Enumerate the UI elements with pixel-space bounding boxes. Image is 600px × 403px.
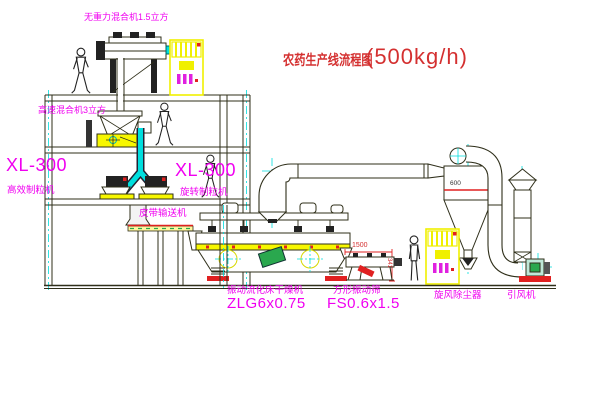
worker-figure-roof <box>72 48 90 93</box>
label-sieve-model: FS0.6x1.5 <box>327 296 400 311</box>
dim-sieve-height: 341 <box>386 258 392 268</box>
label-fan: 引风机 <box>507 291 536 301</box>
page-title-capacity: (500kg/h) <box>366 46 468 68</box>
label-dryer-model: ZLG6x0.75 <box>227 296 306 311</box>
control-cabinet-ground <box>426 229 459 284</box>
granulator-left <box>100 176 134 199</box>
label-xl300-right: XL-300 <box>175 161 236 179</box>
exhaust-stack <box>509 169 536 262</box>
dim-cyclone-diameter: 600 <box>450 181 461 188</box>
worker-figure-floor2 <box>156 103 173 145</box>
dim-sieve-length: 1500 <box>352 242 368 249</box>
label-cyclone: 旋风除尘器 <box>434 291 482 301</box>
label-cone-mixer: 高速混合机3立方 <box>38 106 106 115</box>
worker-figure-ground <box>409 236 419 281</box>
label-granulator-left: 高效制粒机 <box>7 186 55 196</box>
gravity-free-mixer <box>96 32 178 93</box>
vibrating-sieve <box>345 249 402 281</box>
label-xl300-left: XL-300 <box>6 156 67 174</box>
page-title: 农药生产线流程图 <box>283 53 373 67</box>
label-top-mixer: 无重力混合机1.5立方 <box>84 13 169 22</box>
feed-pipe <box>117 58 124 112</box>
label-granulator-right: 旋转制粒机 <box>180 188 228 198</box>
belt-conveyor <box>128 226 193 286</box>
label-belt-conveyor: 皮带输送机 <box>139 209 187 219</box>
process-flow-diagram: 农药生产线流程图 (500kg/h) 无重力混合机1.5立方 高速混合机3立方 … <box>0 0 600 403</box>
control-cabinet-roof <box>170 40 203 95</box>
